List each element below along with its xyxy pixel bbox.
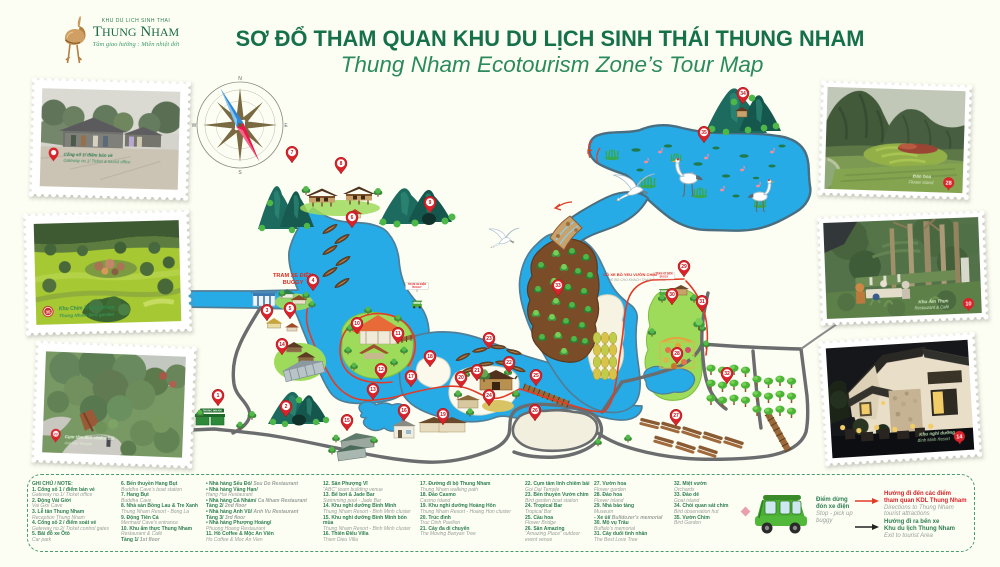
svg-text:18: 18 (427, 354, 433, 360)
svg-text:10: 10 (965, 301, 971, 307)
svg-text:W: W (192, 123, 197, 129)
svg-text:27: 27 (673, 413, 679, 419)
svg-text:21: 21 (474, 368, 480, 374)
svg-text:6: 6 (351, 215, 354, 221)
svg-text:14: 14 (279, 342, 285, 348)
svg-text:5: 5 (289, 306, 292, 312)
svg-text:32: 32 (724, 371, 730, 377)
svg-text:34: 34 (740, 91, 746, 97)
svg-text:11: 11 (395, 331, 401, 337)
svg-text:TRAM XE ĐIỆN: TRAM XE ĐIỆN (273, 271, 313, 279)
svg-text:25: 25 (533, 373, 539, 379)
svg-text:8: 8 (340, 161, 343, 167)
svg-text:28: 28 (946, 180, 952, 186)
svg-text:15: 15 (344, 418, 350, 424)
svg-text:1: 1 (217, 393, 220, 399)
svg-text:35: 35 (701, 130, 707, 136)
svg-text:26: 26 (532, 408, 538, 414)
svg-text:4: 4 (312, 278, 315, 284)
svg-text:23: 23 (486, 336, 492, 342)
svg-text:28: 28 (674, 351, 680, 357)
svg-text:9: 9 (429, 200, 432, 206)
svg-text:20: 20 (458, 375, 464, 381)
svg-text:BUGGY: BUGGY (660, 275, 669, 278)
svg-text:7: 7 (291, 150, 294, 156)
svg-text:13: 13 (370, 387, 376, 393)
svg-text:30: 30 (669, 292, 675, 298)
svg-text:16: 16 (401, 408, 407, 414)
svg-text:17: 17 (408, 374, 414, 380)
svg-text:22: 22 (54, 432, 58, 436)
svg-text:BUGGY: BUGGY (283, 280, 304, 286)
svg-text:THUNG NHAM: THUNG NHAM (202, 408, 222, 412)
svg-text:29: 29 (681, 264, 687, 270)
svg-text:12: 12 (378, 367, 384, 373)
svg-text:10: 10 (354, 321, 360, 327)
svg-text:N: N (238, 76, 242, 82)
svg-text:3: 3 (266, 308, 269, 314)
svg-text:35: 35 (45, 309, 51, 314)
svg-text:BUGGY: BUGGY (412, 285, 422, 289)
svg-text:S: S (238, 170, 242, 176)
svg-text:E: E (284, 123, 288, 129)
svg-text:2: 2 (285, 404, 288, 410)
svg-text:31: 31 (699, 299, 705, 305)
svg-text:33: 33 (555, 283, 561, 289)
svg-text:22: 22 (506, 360, 512, 366)
svg-text:Flower island: Flower island (909, 179, 934, 185)
svg-text:24: 24 (486, 393, 492, 399)
svg-text:CỖ XE BÒ YEU VƯỜN CHIM: CỖ XE BÒ YEU VƯỜN CHIM (603, 272, 657, 277)
svg-text:Đảo hoa: Đảo hoa (913, 174, 932, 180)
svg-text:19: 19 (440, 412, 446, 418)
svg-text:Khu Ẩm Thực: Khu Ẩm Thực (918, 297, 949, 304)
svg-text:XE BO CHO KHACH THAM: XE BO CHO KHACH THAM (608, 278, 651, 282)
